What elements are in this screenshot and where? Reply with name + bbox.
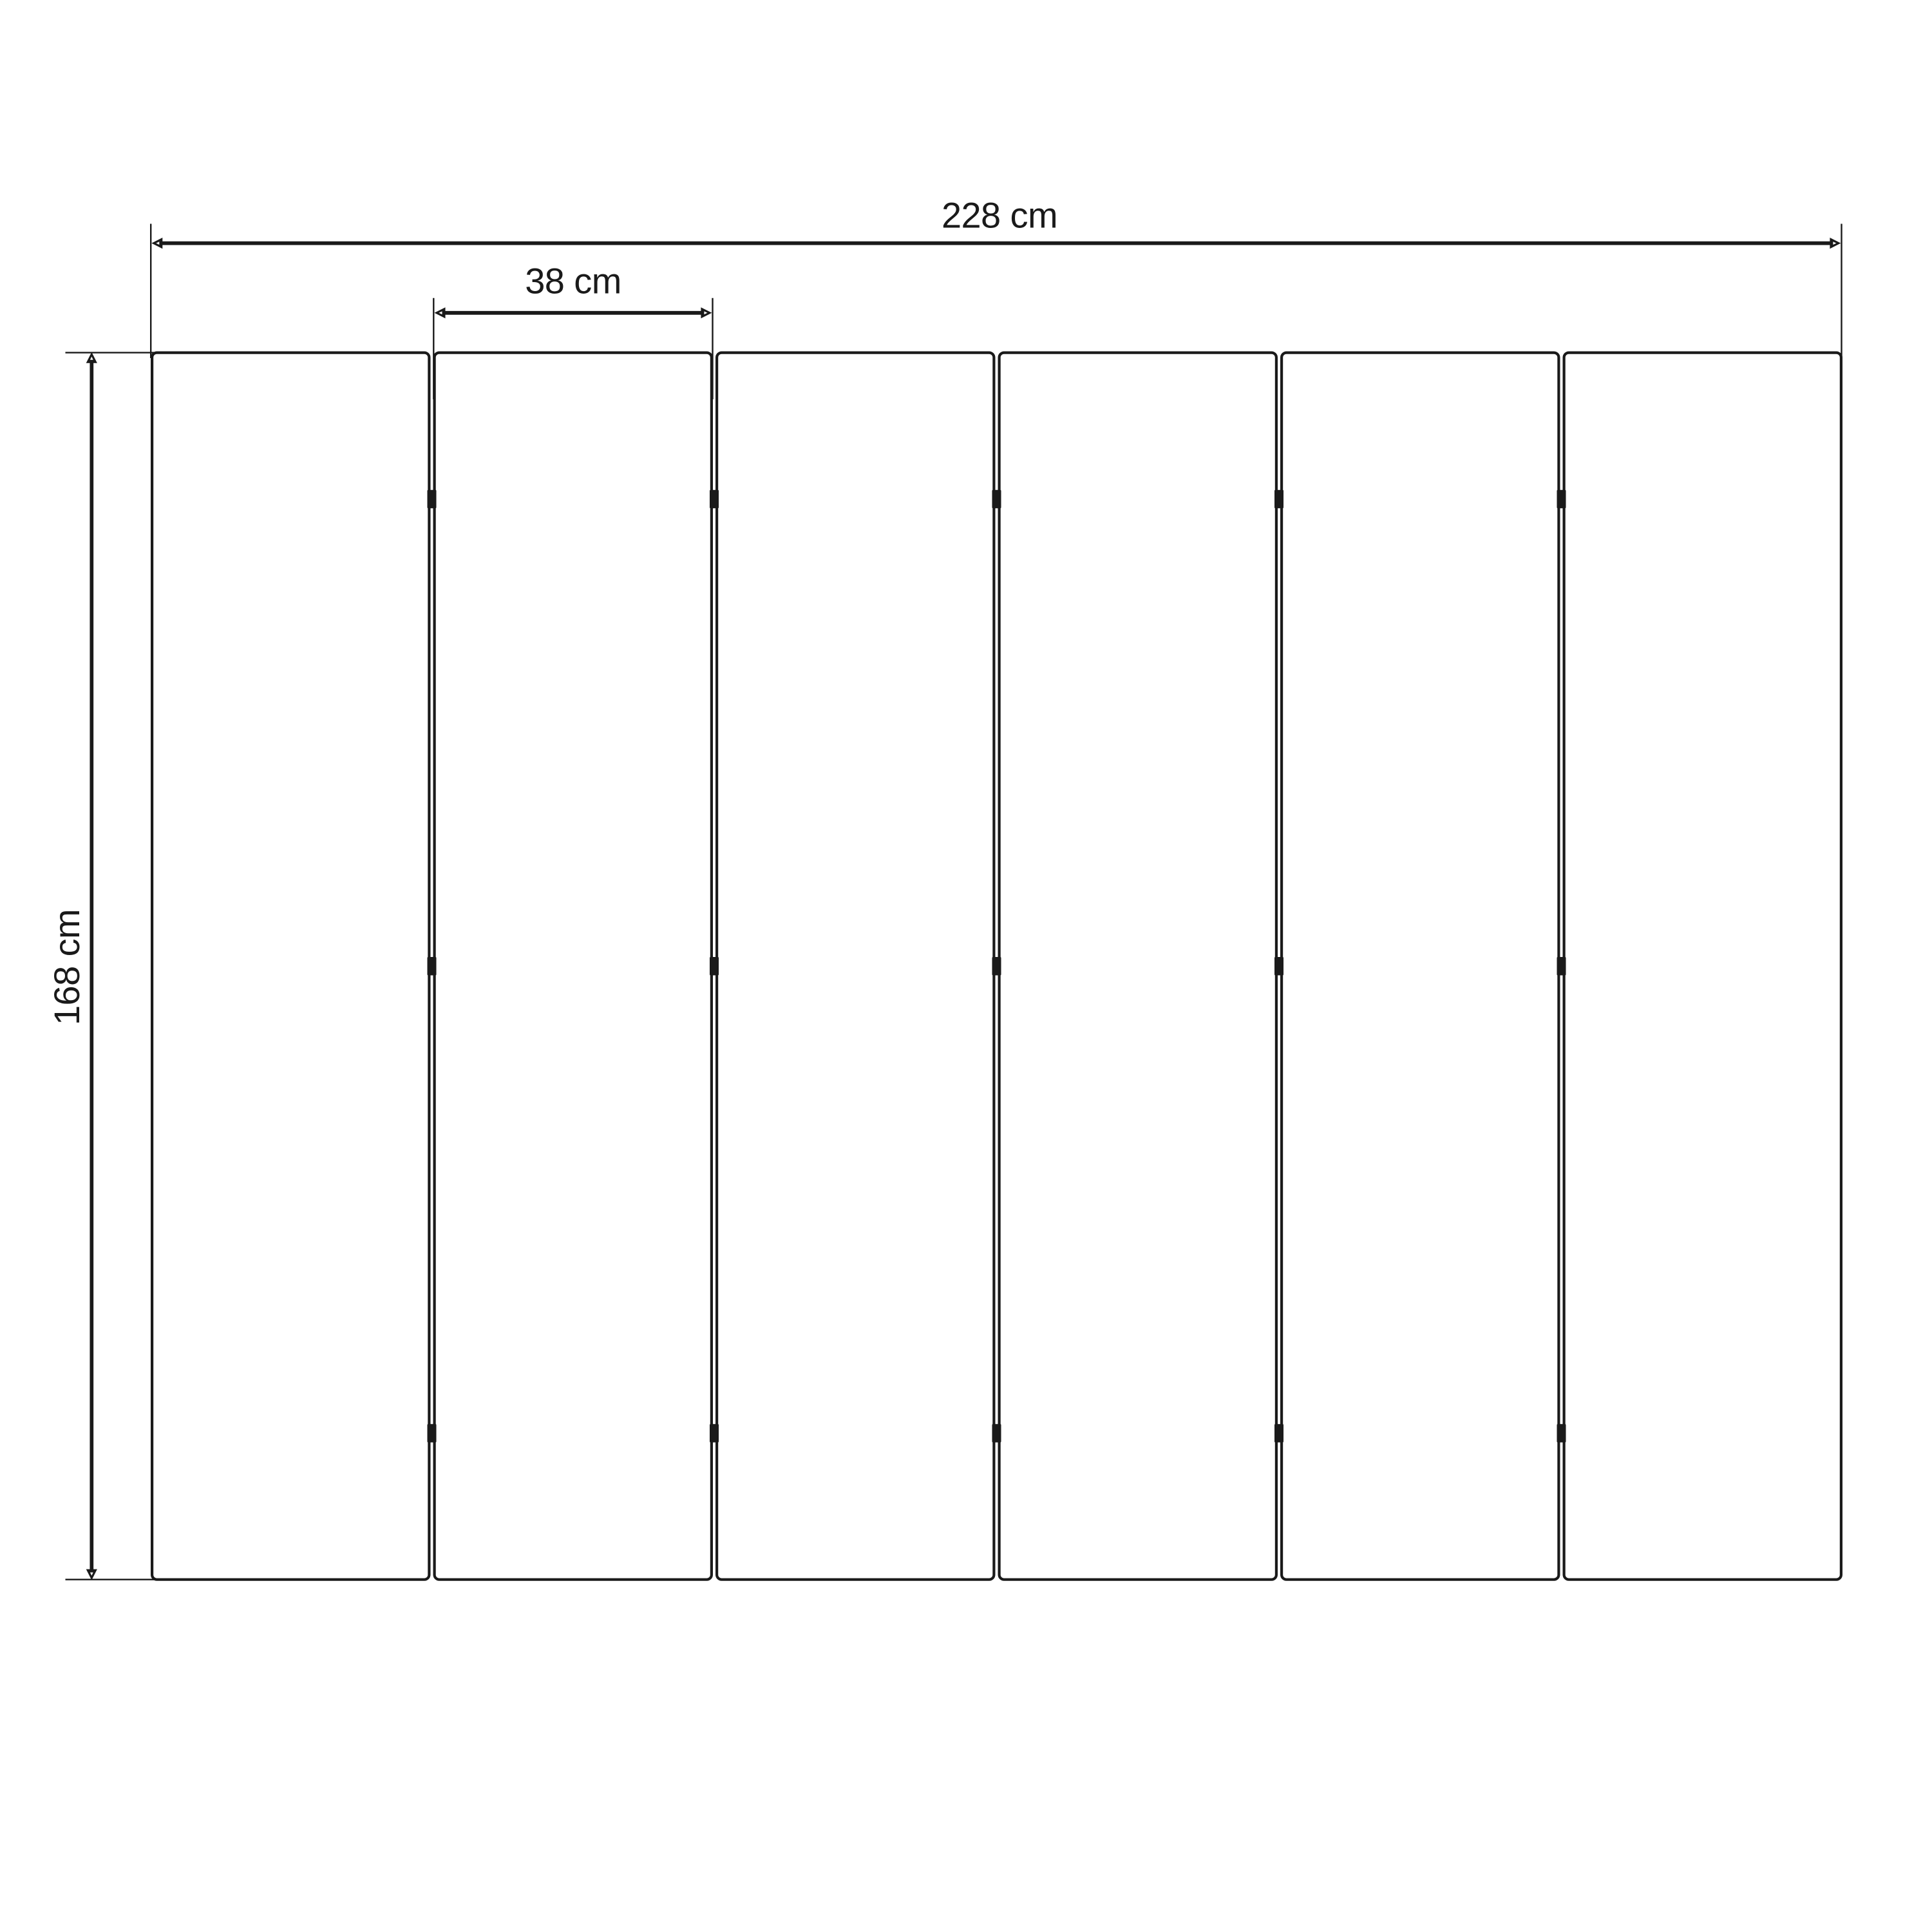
svg-text:38 cm: 38 cm [525, 261, 621, 301]
svg-text:168 cm: 168 cm [46, 909, 87, 1025]
svg-text:228 cm: 228 cm [942, 194, 1057, 235]
